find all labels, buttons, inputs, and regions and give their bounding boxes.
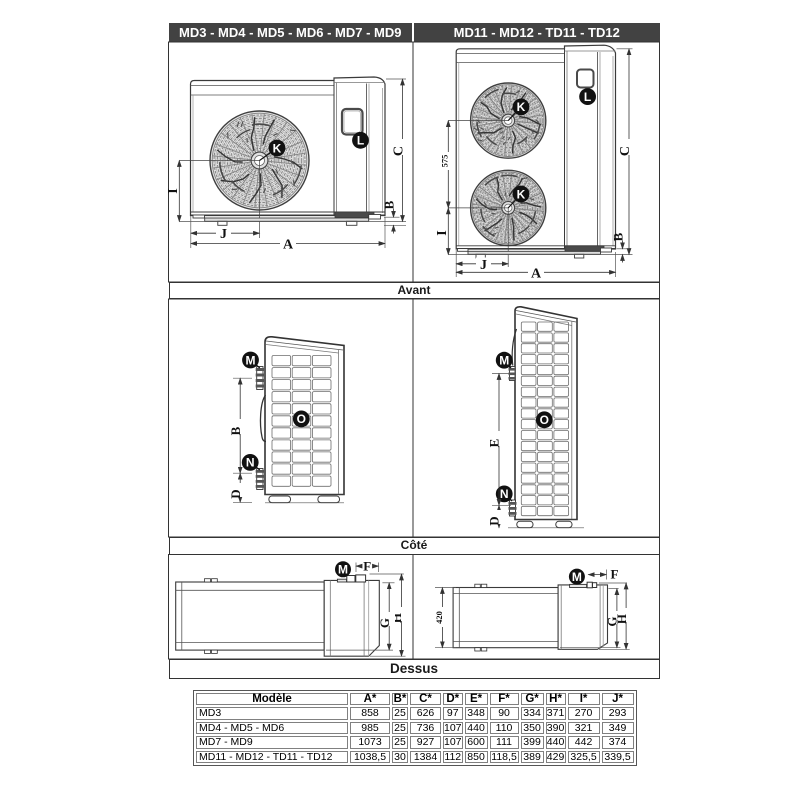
svg-text:O: O (297, 412, 306, 426)
svg-text:H: H (614, 614, 629, 624)
svg-text:B: B (228, 426, 243, 435)
svg-text:M: M (246, 353, 256, 367)
svg-text:D: D (487, 516, 502, 525)
svg-text:F: F (611, 567, 619, 582)
svg-text:M: M (338, 563, 348, 577)
svg-text:C: C (618, 146, 633, 156)
svg-text:M: M (572, 570, 582, 584)
svg-text:I: I (166, 188, 181, 193)
svg-text:N: N (246, 456, 255, 470)
svg-text:B: B (382, 200, 397, 209)
svg-text:K: K (517, 100, 526, 114)
svg-text:575: 575 (440, 155, 450, 168)
svg-text:D: D (228, 489, 243, 498)
svg-text:L: L (357, 134, 364, 148)
svg-text:O: O (540, 413, 549, 427)
svg-text:K: K (517, 187, 526, 201)
svg-text:C: C (392, 146, 407, 156)
svg-text:B: B (610, 232, 625, 241)
svg-text:I: I (435, 230, 450, 235)
svg-text:G: G (377, 618, 392, 628)
svg-text:M: M (499, 354, 509, 368)
svg-text:J: J (480, 258, 487, 273)
svg-text:J: J (220, 227, 227, 242)
svg-text:N: N (500, 487, 509, 501)
svg-text:L: L (584, 90, 591, 104)
svg-text:A: A (283, 238, 294, 253)
svg-text:E: E (487, 439, 502, 448)
svg-text:F: F (363, 558, 371, 573)
svg-text:K: K (273, 141, 282, 155)
svg-text:A: A (531, 266, 542, 281)
svg-text:420: 420 (434, 611, 444, 624)
